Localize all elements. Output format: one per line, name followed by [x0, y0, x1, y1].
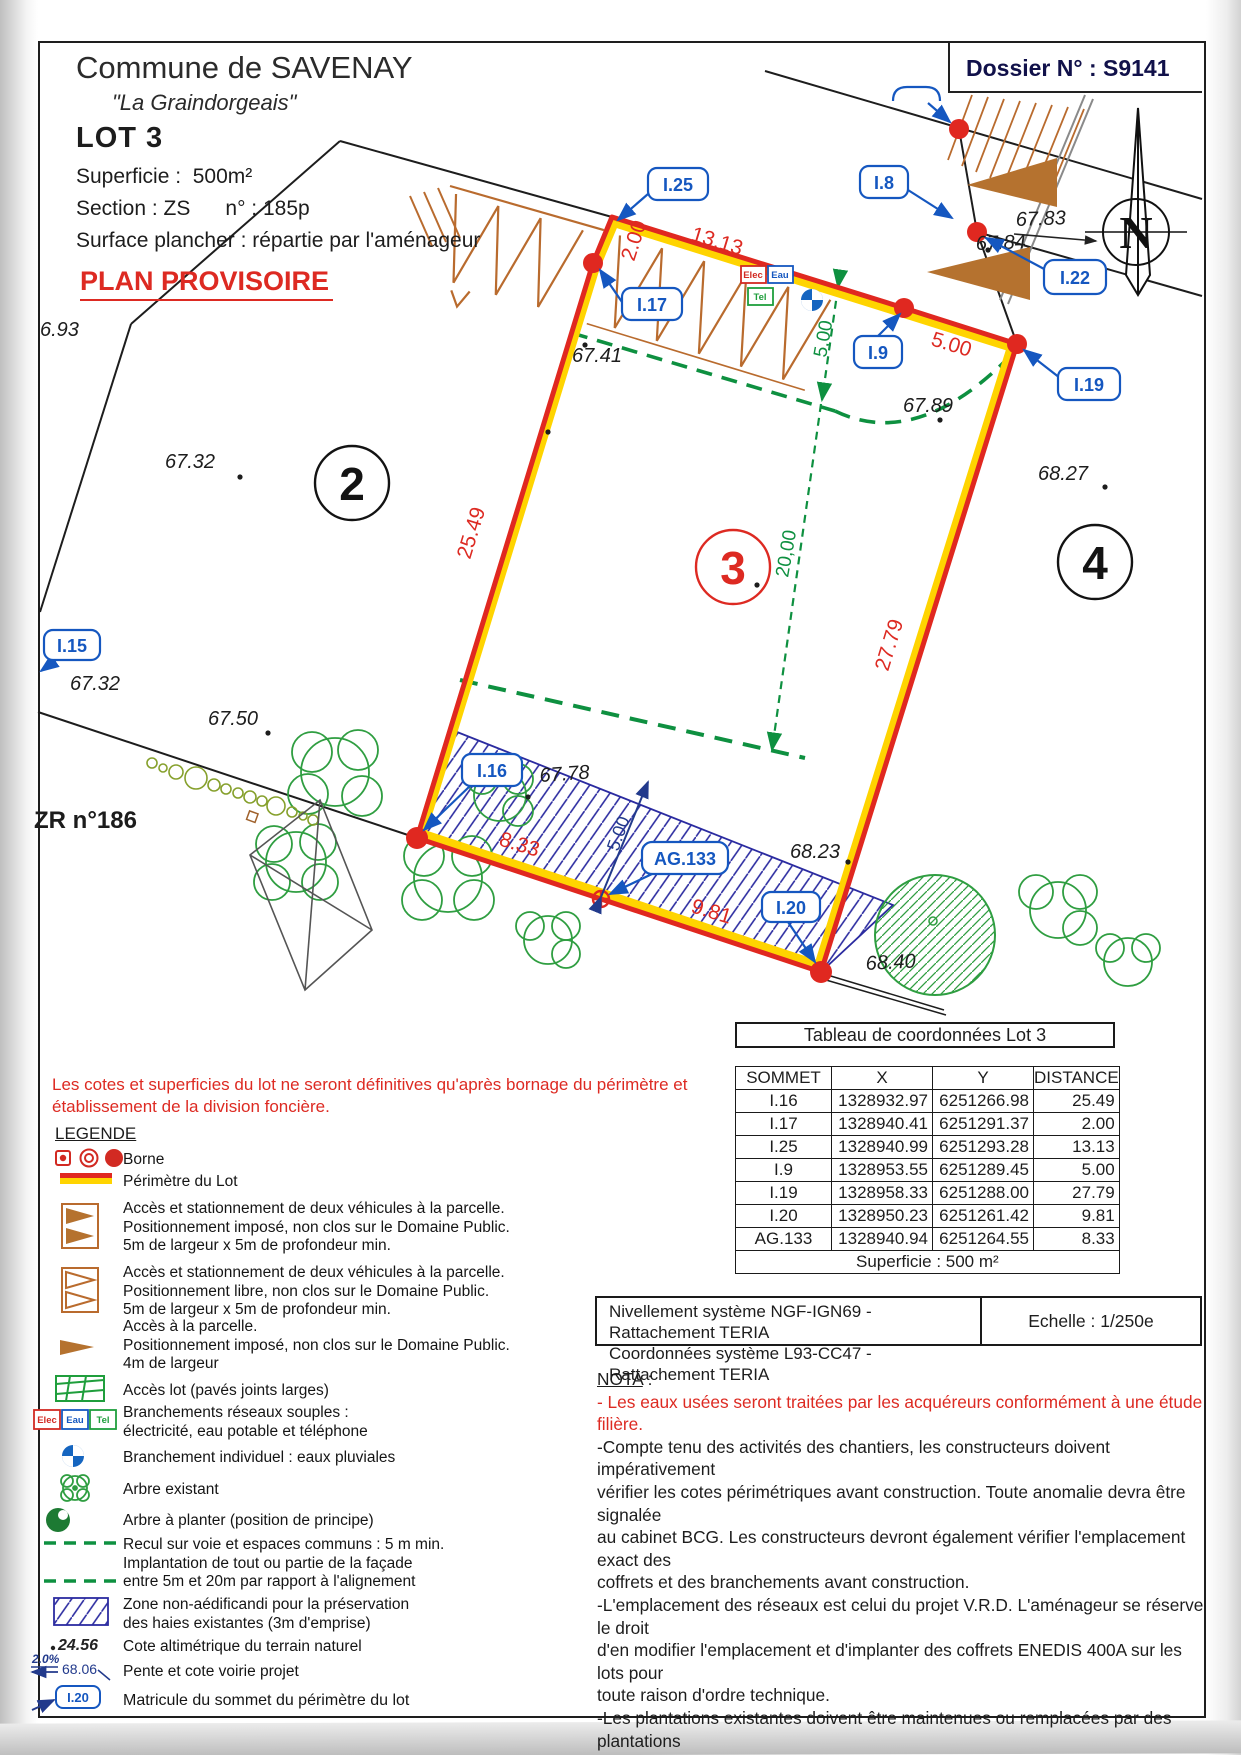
- svg-text:24.56: 24.56: [57, 1637, 98, 1654]
- svg-text:Eau: Eau: [66, 1415, 84, 1426]
- svg-text:6.93: 6.93: [40, 319, 79, 341]
- legend-zone-non-aedificandi: Zone non-aédificandi pour la préservatio…: [123, 1596, 409, 1633]
- shed-crossed-structure: [250, 800, 372, 990]
- parcel-zr186-label: ZR n°186: [34, 807, 137, 834]
- legend-acces-libre: Accès et stationnement de deux véhicules…: [123, 1264, 505, 1320]
- svg-text:I.20: I.20: [67, 1690, 89, 1705]
- legend-pente: Pente et cote voirie projet: [123, 1663, 299, 1682]
- legend-acces-parcelle: Accès à la parcelle.Positionnement impos…: [123, 1318, 510, 1374]
- svg-text:I.17: I.17: [637, 295, 667, 315]
- svg-text:Tel: Tel: [96, 1415, 109, 1426]
- svg-text:67.78: 67.78: [539, 762, 590, 787]
- dossier-number-box: Dossier N° : S9141: [948, 43, 1202, 93]
- legend-eaux-pluviales: Branchement individuel : eaux pluviales: [123, 1449, 395, 1468]
- disclaimer-line1: Les cotes et superficies du lot ne seron…: [52, 1074, 687, 1096]
- plan-provisoire-stamp: PLAN PROVISOIRE: [80, 266, 333, 301]
- borne-ag133-symbol: [592, 890, 610, 908]
- commune-title: Commune de SAVENAY: [76, 50, 413, 86]
- parcel-4-circle: 4: [1058, 525, 1132, 599]
- svg-text:I.16: I.16: [477, 761, 507, 781]
- tel-box-label: Tel: [753, 292, 766, 303]
- table-row: I.91328953.556251289.455.00: [736, 1159, 1120, 1182]
- svg-text:I.8: I.8: [874, 173, 894, 193]
- legend-acces-lot: Accès lot (pavés joints larges): [123, 1382, 329, 1401]
- table-row: I.201328950.236251261.429.81: [736, 1205, 1120, 1228]
- red-disclaimer: Les cotes et superficies du lot ne seron…: [52, 1074, 687, 1118]
- svg-text:I.20: I.20: [776, 898, 806, 918]
- hedge-bush-chain: [147, 758, 318, 825]
- coords-table-title: Tableau de coordonnées Lot 3: [735, 1022, 1115, 1048]
- svg-text:I.19: I.19: [1074, 375, 1104, 395]
- svg-text:4: 4: [1082, 537, 1108, 589]
- svg-text:2: 2: [339, 458, 365, 510]
- svg-text:2.0%: 2.0%: [31, 1652, 60, 1666]
- section-line: Section : ZS n° : 185p: [76, 197, 310, 221]
- svg-text:I.15: I.15: [57, 636, 87, 656]
- geodesy-lines: Nivellement système NGF-IGN69 - Rattache…: [597, 1298, 980, 1344]
- legend-branchements: Branchements réseaux souples :électricit…: [123, 1404, 368, 1441]
- legend-title: LEGENDE: [55, 1124, 136, 1144]
- small-marker-square: [247, 811, 259, 823]
- table-row: I.191328958.336251288.0027.79: [736, 1182, 1120, 1205]
- svg-text:67.32: 67.32: [70, 673, 120, 695]
- surface-plancher-line: Surface plancher : répartie par l'aménag…: [76, 229, 480, 253]
- scale-cell: Echelle : 1/250e: [980, 1298, 1200, 1344]
- svg-text:67.41: 67.41: [572, 345, 622, 367]
- place-subtitle: "La Graindorgeais": [112, 90, 296, 116]
- table-row: I.171328940.416251291.372.00: [736, 1113, 1120, 1136]
- svg-text:I.22: I.22: [1060, 268, 1090, 288]
- svg-text:67.83: 67.83: [1015, 207, 1066, 231]
- svg-text:67.50: 67.50: [208, 708, 258, 730]
- legend-icons: Elec Eau Tel: [31, 1149, 123, 1710]
- scanned-plan-page: Elec Eau Tel 13.13 5.00 2.00 25.49 27.79…: [0, 0, 1241, 1755]
- svg-text:68.23: 68.23: [790, 841, 840, 863]
- svg-text:3: 3: [720, 542, 746, 594]
- svg-text:68.06: 68.06: [62, 1661, 97, 1677]
- table-row: I.251328940.996251293.2813.13: [736, 1136, 1120, 1159]
- eau-box-label: Eau: [771, 270, 789, 281]
- legend-perimetre: Périmètre du Lot: [123, 1173, 238, 1192]
- svg-text:68.40: 68.40: [865, 950, 916, 975]
- legend-arbre-existant: Arbre existant: [123, 1481, 219, 1500]
- legend-cote-altimetrique: Cote altimétrique du terrain naturel: [123, 1638, 362, 1657]
- legend-recul: Recul sur voie et espaces communs : 5 m …: [123, 1536, 444, 1592]
- disclaimer-line2: établissement de la division foncière.: [52, 1096, 687, 1118]
- geodesy-reference-box: Nivellement système NGF-IGN69 - Rattache…: [595, 1296, 1202, 1346]
- legend-acces-impose: Accès et stationnement de deux véhicules…: [123, 1200, 510, 1256]
- svg-text:I.9: I.9: [868, 343, 888, 363]
- table-row: AG.1331328940.946251264.558.33: [736, 1228, 1120, 1251]
- svg-text:67.32: 67.32: [165, 451, 215, 473]
- stormwater-connection-icon: [801, 289, 823, 311]
- superficie-line: Superficie : 500m²: [76, 165, 252, 189]
- svg-text:68.27: 68.27: [1038, 463, 1089, 485]
- svg-text:27.79: 27.79: [871, 616, 908, 673]
- tree-to-preserve-hatched: [875, 875, 995, 995]
- nota-title: NOTA: [597, 1369, 643, 1389]
- legend-borne: Borne: [123, 1151, 164, 1170]
- nota-section: NOTA : - Les eaux usées seront traitées …: [597, 1368, 1205, 1755]
- setback-dashed-lines: [460, 287, 1017, 758]
- coords-table: SOMMETX YDISTANCE I.161328932.976251266.…: [735, 1066, 1120, 1274]
- legend-matricule: Matricule du sommet du périmètre du lot: [123, 1692, 409, 1711]
- parcel-2-circle: 2: [315, 446, 389, 520]
- svg-text:67.89: 67.89: [903, 395, 953, 417]
- svg-text:Elec: Elec: [37, 1415, 57, 1426]
- coords-header-row: SOMMETX YDISTANCE: [736, 1067, 1120, 1090]
- svg-text:AG.133: AG.133: [654, 849, 716, 869]
- svg-text:25.49: 25.49: [453, 504, 490, 561]
- green-dimensions: 5,00 20,00: [772, 319, 837, 579]
- svg-text:N: N: [1119, 207, 1152, 258]
- table-row: I.161328932.976251266.9825.49: [736, 1090, 1120, 1113]
- parcel-3-circle: 3: [696, 530, 770, 604]
- lot-number: LOT 3: [76, 122, 163, 155]
- legend-arbre-planter: Arbre à planter (position de principe): [123, 1512, 374, 1531]
- svg-text:I.25: I.25: [663, 175, 693, 195]
- table-footer-row: Superficie : 500 m²: [736, 1251, 1120, 1274]
- elec-box-label: Elec: [743, 270, 763, 281]
- nota-red-line: - Les eaux usées seront traitées par les…: [597, 1391, 1205, 1436]
